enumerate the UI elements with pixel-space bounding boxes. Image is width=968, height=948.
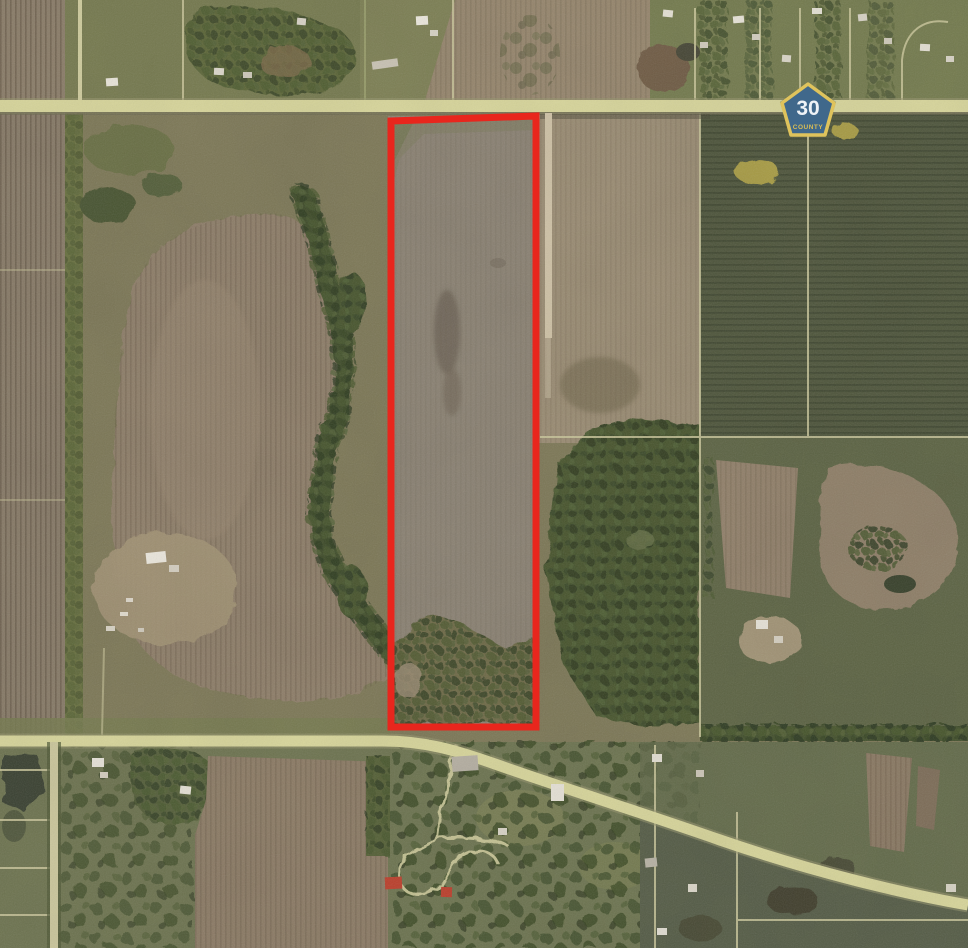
route-number: 30: [796, 97, 819, 120]
aerial-map-canvas: 30 COUNTY: [0, 0, 968, 948]
route-label: COUNTY: [793, 124, 824, 131]
photo-grain-overlay: [0, 0, 968, 948]
aerial-map: 30 COUNTY: [0, 0, 968, 948]
